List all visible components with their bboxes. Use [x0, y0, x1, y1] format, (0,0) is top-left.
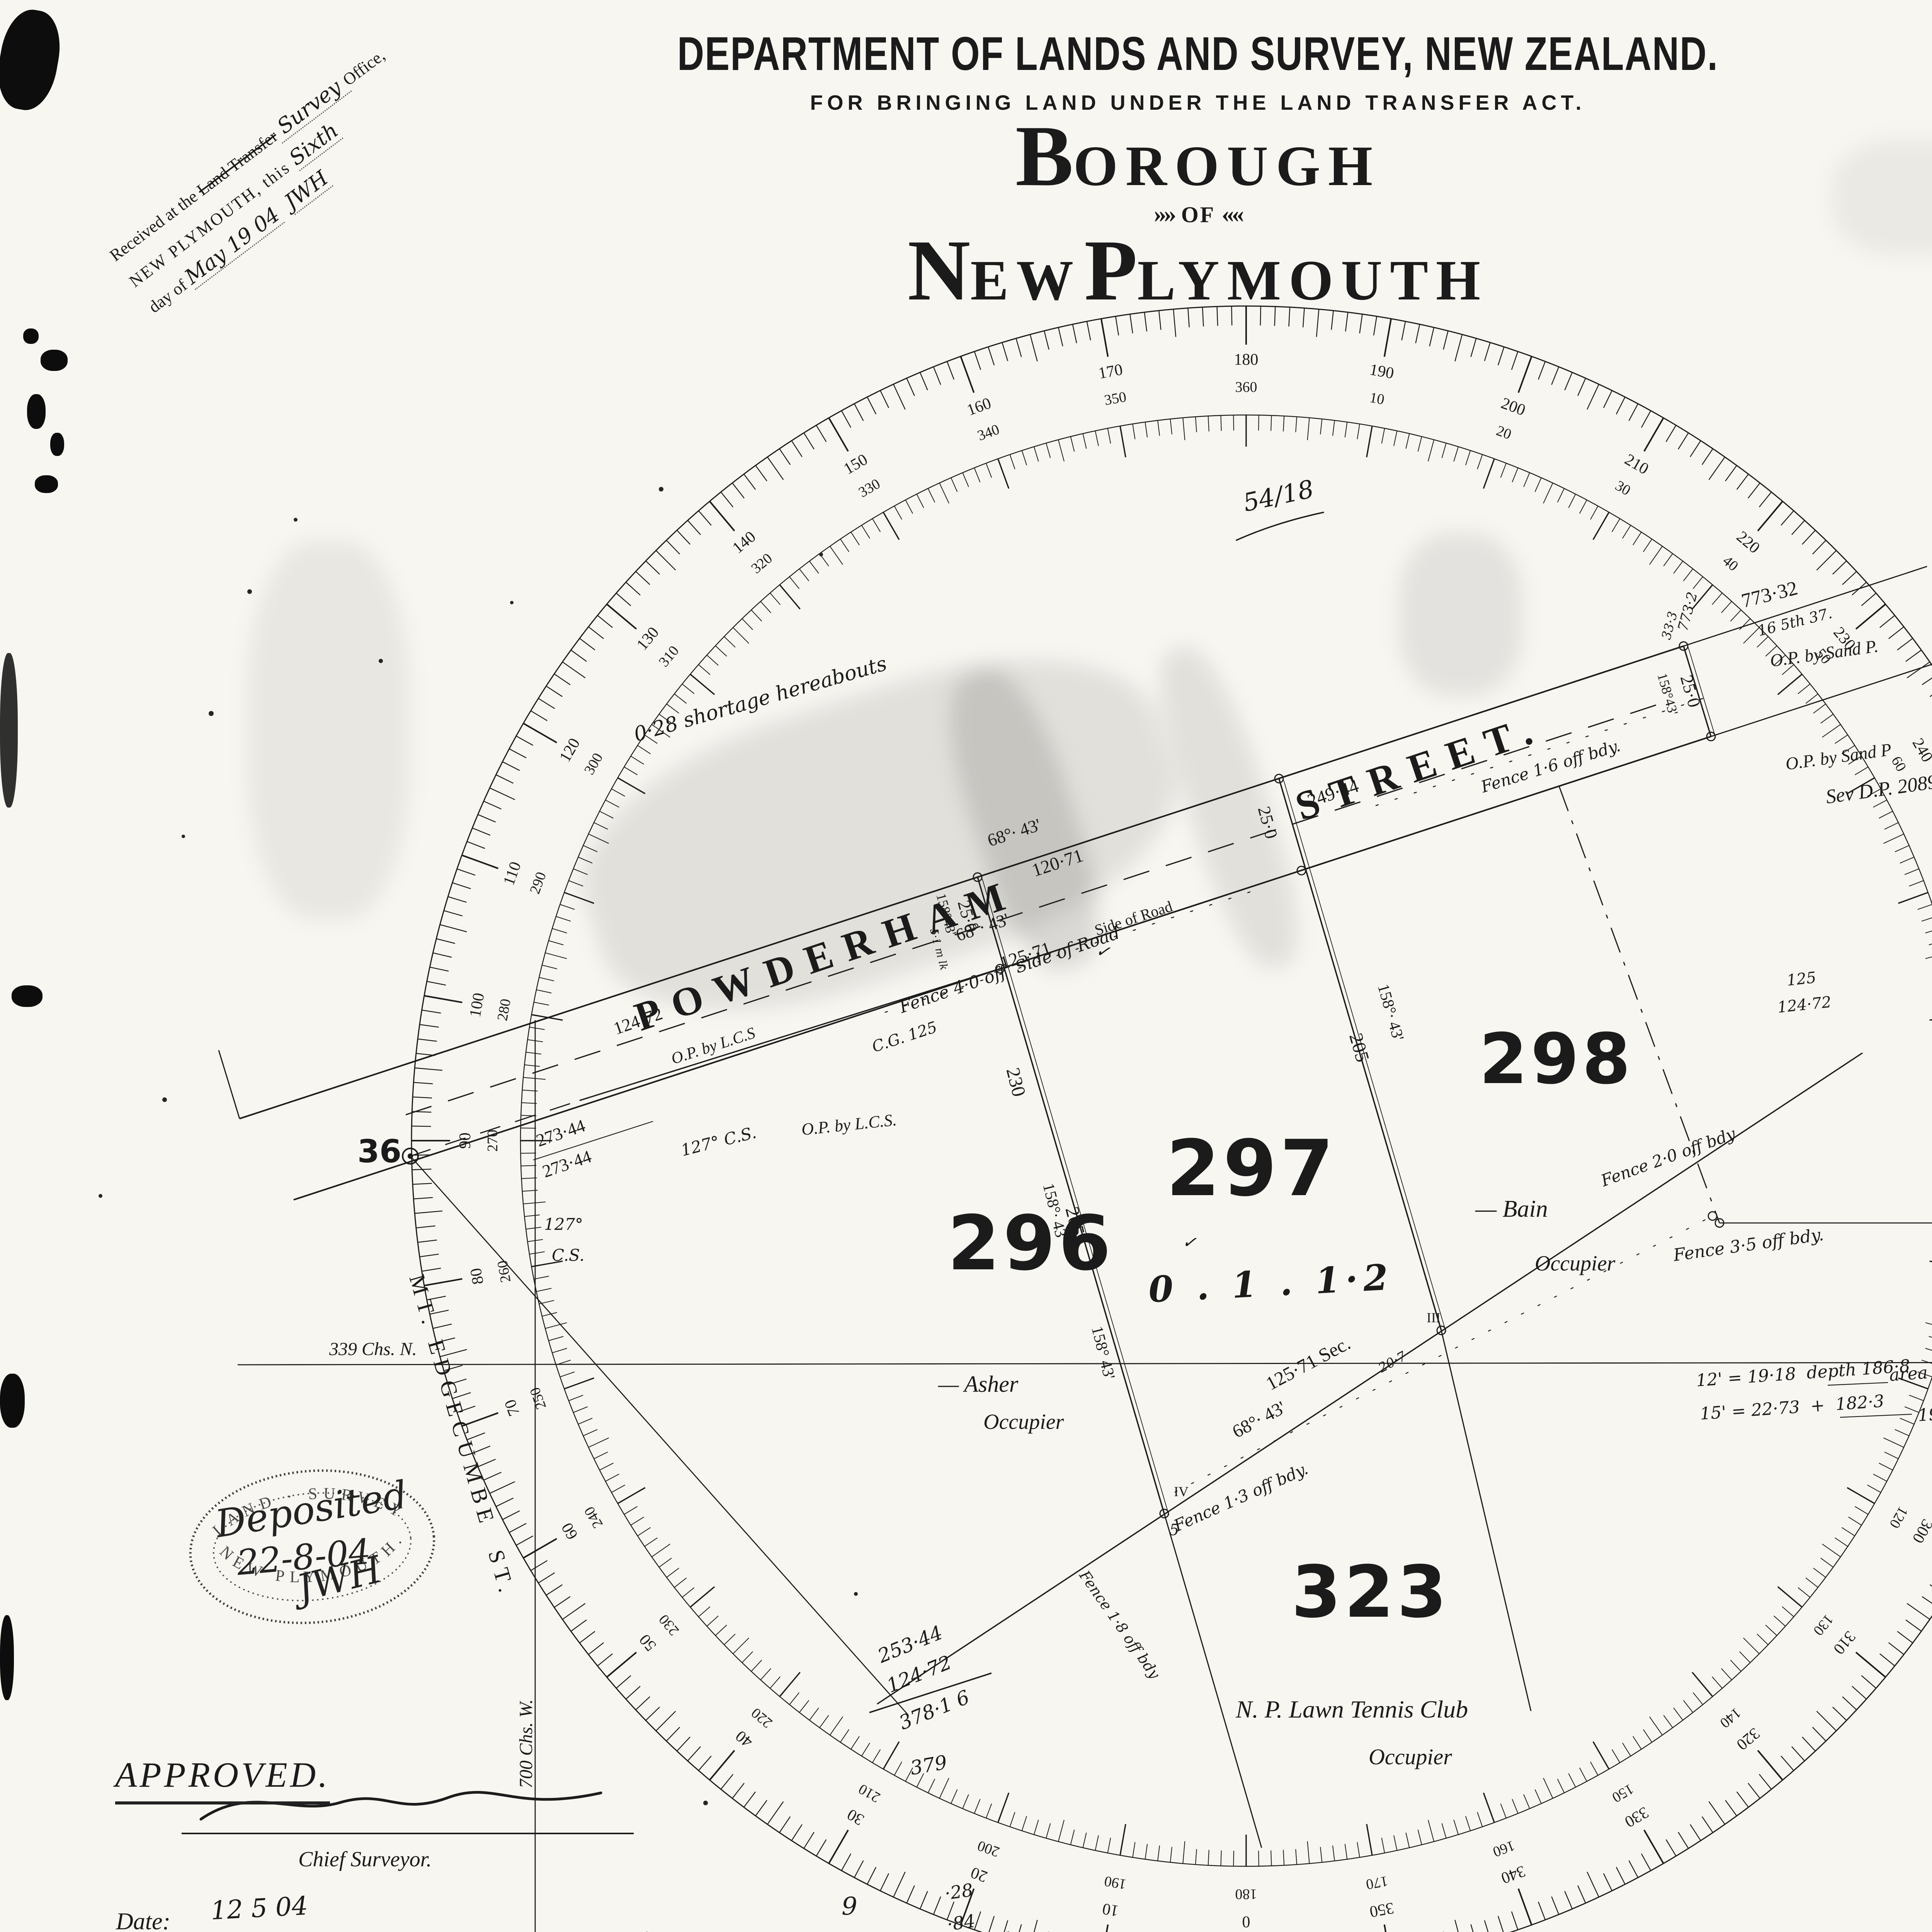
map-annotation: IV: [1174, 1485, 1189, 1498]
map-annotation: C.S.: [552, 1247, 585, 1264]
map-annotation: 298: [1479, 1025, 1634, 1094]
map-annotation: 124·72: [1777, 994, 1832, 1015]
speck: [703, 1801, 708, 1805]
speck: [854, 1592, 858, 1596]
speck: [819, 553, 823, 556]
map-annotation: 158°∙ 43': [1375, 982, 1406, 1043]
map-annotation: 54/18: [1241, 477, 1316, 516]
map-annotation: O.P. by Sand P.: [1769, 637, 1879, 670]
map-annotation: O.P. by Sand P: [1784, 741, 1893, 773]
map-annotation: Occupier: [983, 1411, 1064, 1433]
np-rest-2: LYMOUTH: [1138, 249, 1488, 312]
ink-blot: [0, 1615, 14, 1700]
map-annotation: ·84: [946, 1912, 976, 1932]
map-annotation: 158° 43': [1088, 1325, 1117, 1381]
chief-surveyor-label: Chief Surveyor.: [298, 1847, 432, 1872]
of-word: OF: [1181, 202, 1214, 227]
map-annotation: 9: [842, 1894, 857, 1919]
map-annotation: 68°∙ 43': [1230, 1398, 1289, 1442]
map-annotation: Occupier: [1535, 1253, 1615, 1274]
ink-blot: [35, 475, 58, 493]
map-annotation: O.P. by L.C.S: [669, 1025, 757, 1067]
ink-blot: [50, 433, 64, 456]
map-annotation: 0 . 1 . 1·2: [1148, 1259, 1394, 1308]
map-annotation: Fence 2·0 off bdy: [1599, 1126, 1738, 1189]
ink-blot: [23, 328, 39, 344]
map-annotation: 323: [1291, 1556, 1450, 1628]
survey-plan-sheet: SURVEY OFFICE 01801019020200302104022050…: [0, 0, 1932, 1932]
map-annotation: Occupier: [1369, 1746, 1452, 1768]
department-title: DEPARTMENT OF LANDS AND SURVEY, NEW ZEAL…: [676, 27, 1719, 82]
map-annotation: 700 Chs. W.: [517, 1699, 536, 1788]
map-annotation: C.G. 125: [870, 1019, 939, 1055]
map-annotation: Fence 3·5 off bdy.: [1672, 1226, 1825, 1264]
map-annotation: Fence 1·8 off bdy: [1077, 1568, 1162, 1681]
borough-initial: B: [1015, 107, 1073, 204]
map-annotation: 205: [1346, 1031, 1373, 1064]
approved-label: APPROVED.: [115, 1754, 330, 1804]
map-annotation: 5: [1169, 1522, 1179, 1538]
new-plymouth-title: NEW PLYMOUTH: [676, 229, 1719, 312]
map-annotation: III: [1427, 1311, 1440, 1325]
map-annotation: ✓: [1094, 942, 1111, 961]
map-annotation: 127° C.S.: [679, 1124, 758, 1159]
map-annotation: 379: [909, 1752, 949, 1778]
map-annotation: 273·44: [534, 1117, 587, 1150]
map-annotation: — Asher: [938, 1372, 1018, 1396]
deposited-stamp: LAND · SURVEY NEW PLYMOUTH. Deposited 22…: [174, 1452, 451, 1641]
header: DEPARTMENT OF LANDS AND SURVEY, NEW ZEAL…: [676, 33, 1719, 312]
map-annotation: 12' = 19·18 depth 186·8: [1696, 1357, 1911, 1389]
ink-blot: [12, 985, 43, 1007]
speck: [247, 589, 252, 594]
map-annotation: ·28: [944, 1881, 974, 1903]
map-annotation: 773·32: [1740, 578, 1800, 611]
borough-title: BOROUGH: [676, 115, 1719, 197]
map-annotation: 19·35 p.: [1917, 1402, 1932, 1424]
speck: [182, 835, 185, 838]
map-annotation: 339 Chs. N.: [329, 1340, 417, 1359]
ink-blot: [7, 70, 34, 88]
map-annotation: 230: [1003, 1066, 1029, 1099]
approved-date-value: 12 5 04: [210, 1891, 309, 1925]
map-annotation: N. P. Lawn Tennis Club: [1236, 1697, 1468, 1722]
map-annotation: — Bain: [1475, 1197, 1548, 1221]
speck: [294, 518, 298, 522]
np-initial-2: P: [1084, 222, 1137, 318]
map-annotation: 378·1 6: [896, 1687, 972, 1733]
ink-blot: [27, 394, 46, 429]
map-annotation: 773·2: [1676, 590, 1700, 633]
map-annotation: 125·71 Sec.: [1263, 1333, 1353, 1393]
np-rest-1: EW: [970, 249, 1081, 312]
map-annotation: 296: [947, 1206, 1114, 1281]
speck: [209, 711, 214, 716]
speck: [510, 601, 514, 604]
ink-blot: [0, 1374, 25, 1428]
map-annotation: 25·0: [1677, 673, 1703, 709]
map-annotation: Fence 1·3 off bdy.: [1172, 1461, 1310, 1534]
map-annotation: POWDERHAM: [630, 872, 1022, 1037]
left-ornament-icon: »»: [1154, 200, 1174, 228]
map-annotation: 68°∙ 43': [985, 816, 1043, 850]
map-annotation: 0·28 shortage hereabouts: [632, 653, 889, 745]
map-annotation: 120·71: [1030, 846, 1085, 880]
map-annotation: O.P. by L.C.S.: [801, 1111, 898, 1138]
map-annotation: 36: [357, 1136, 401, 1168]
map-annotation: 16 5th 37.: [1756, 605, 1833, 638]
speck: [99, 1194, 102, 1198]
speck: [659, 487, 663, 492]
map-annotation: 15' = 22·73 + 182·3: [1699, 1393, 1885, 1423]
of-row: »» OF ««: [676, 200, 1719, 228]
right-ornament-icon: ««: [1222, 200, 1242, 228]
map-annotation: 33·3: [1660, 610, 1679, 641]
np-initial-1: N: [908, 222, 971, 318]
map-annotation: 273·44: [540, 1148, 594, 1181]
header-subtitle: FOR BRINGING LAND UNDER THE LAND TRANSFE…: [676, 91, 1719, 115]
speck: [379, 659, 383, 663]
map-annotation: 127°: [544, 1216, 583, 1233]
map-annotation: 4464: [602, 1926, 678, 1932]
ink-blot: [41, 350, 68, 371]
map-annotation: STREET.: [1291, 706, 1549, 827]
map-annotation: Sev D.P. 2089.: [1825, 771, 1932, 808]
speck: [162, 1097, 167, 1102]
map-annotation: ✓: [1181, 1233, 1197, 1252]
map-annotation: 20·7: [1376, 1349, 1408, 1375]
ink-blot: [0, 653, 18, 808]
approved-date-label: Date:: [116, 1908, 170, 1932]
map-annotation: 125: [1786, 970, 1817, 988]
map-annotation: 297: [1166, 1130, 1337, 1207]
map-annotation: 25·0: [1255, 804, 1281, 840]
borough-rest: OROUGH: [1073, 134, 1380, 198]
